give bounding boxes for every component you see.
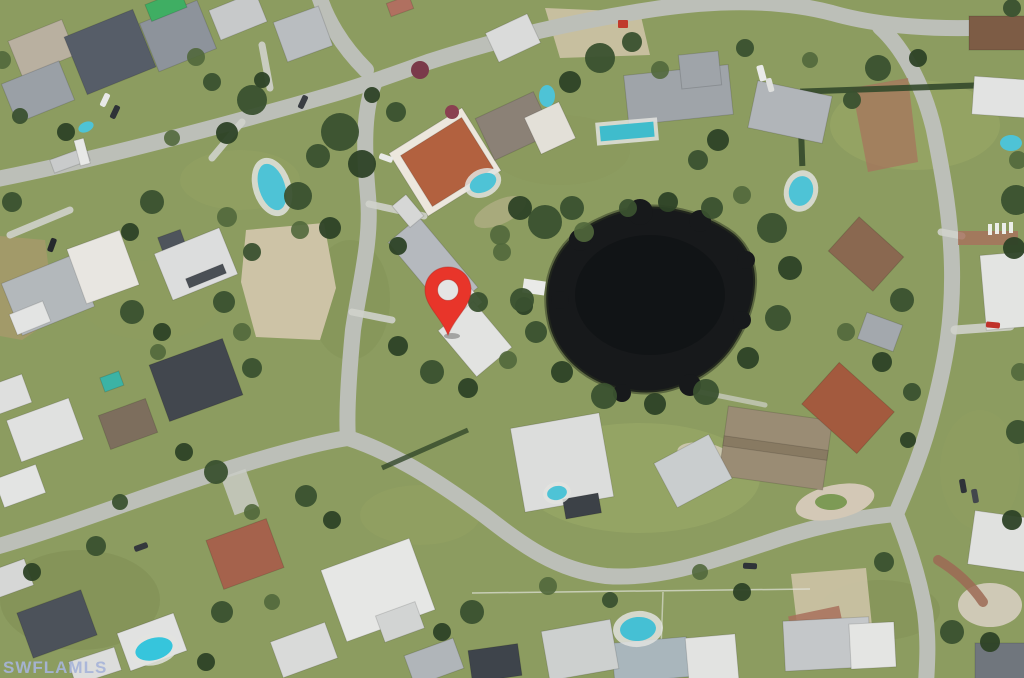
house-roof (969, 16, 1024, 50)
satellite-map-image[interactable]: SWFLAMLS (0, 0, 1024, 678)
car (986, 321, 1000, 328)
tractor (618, 20, 628, 28)
house-roof (980, 251, 1024, 331)
watermark-text: SWFLAMLS (3, 658, 107, 677)
swimming-pool (1000, 135, 1022, 151)
swimming-pool (539, 85, 555, 107)
aerial-scene: SWFLAMLS (0, 0, 1024, 678)
flowering-bush (411, 61, 429, 79)
house-roof (972, 76, 1024, 118)
flowering-bush (445, 105, 459, 119)
house-roof (678, 51, 721, 89)
sand-lot (241, 223, 336, 340)
car (743, 563, 757, 570)
house-roof (685, 634, 739, 678)
court-island (815, 494, 847, 510)
house-roof (849, 622, 896, 669)
